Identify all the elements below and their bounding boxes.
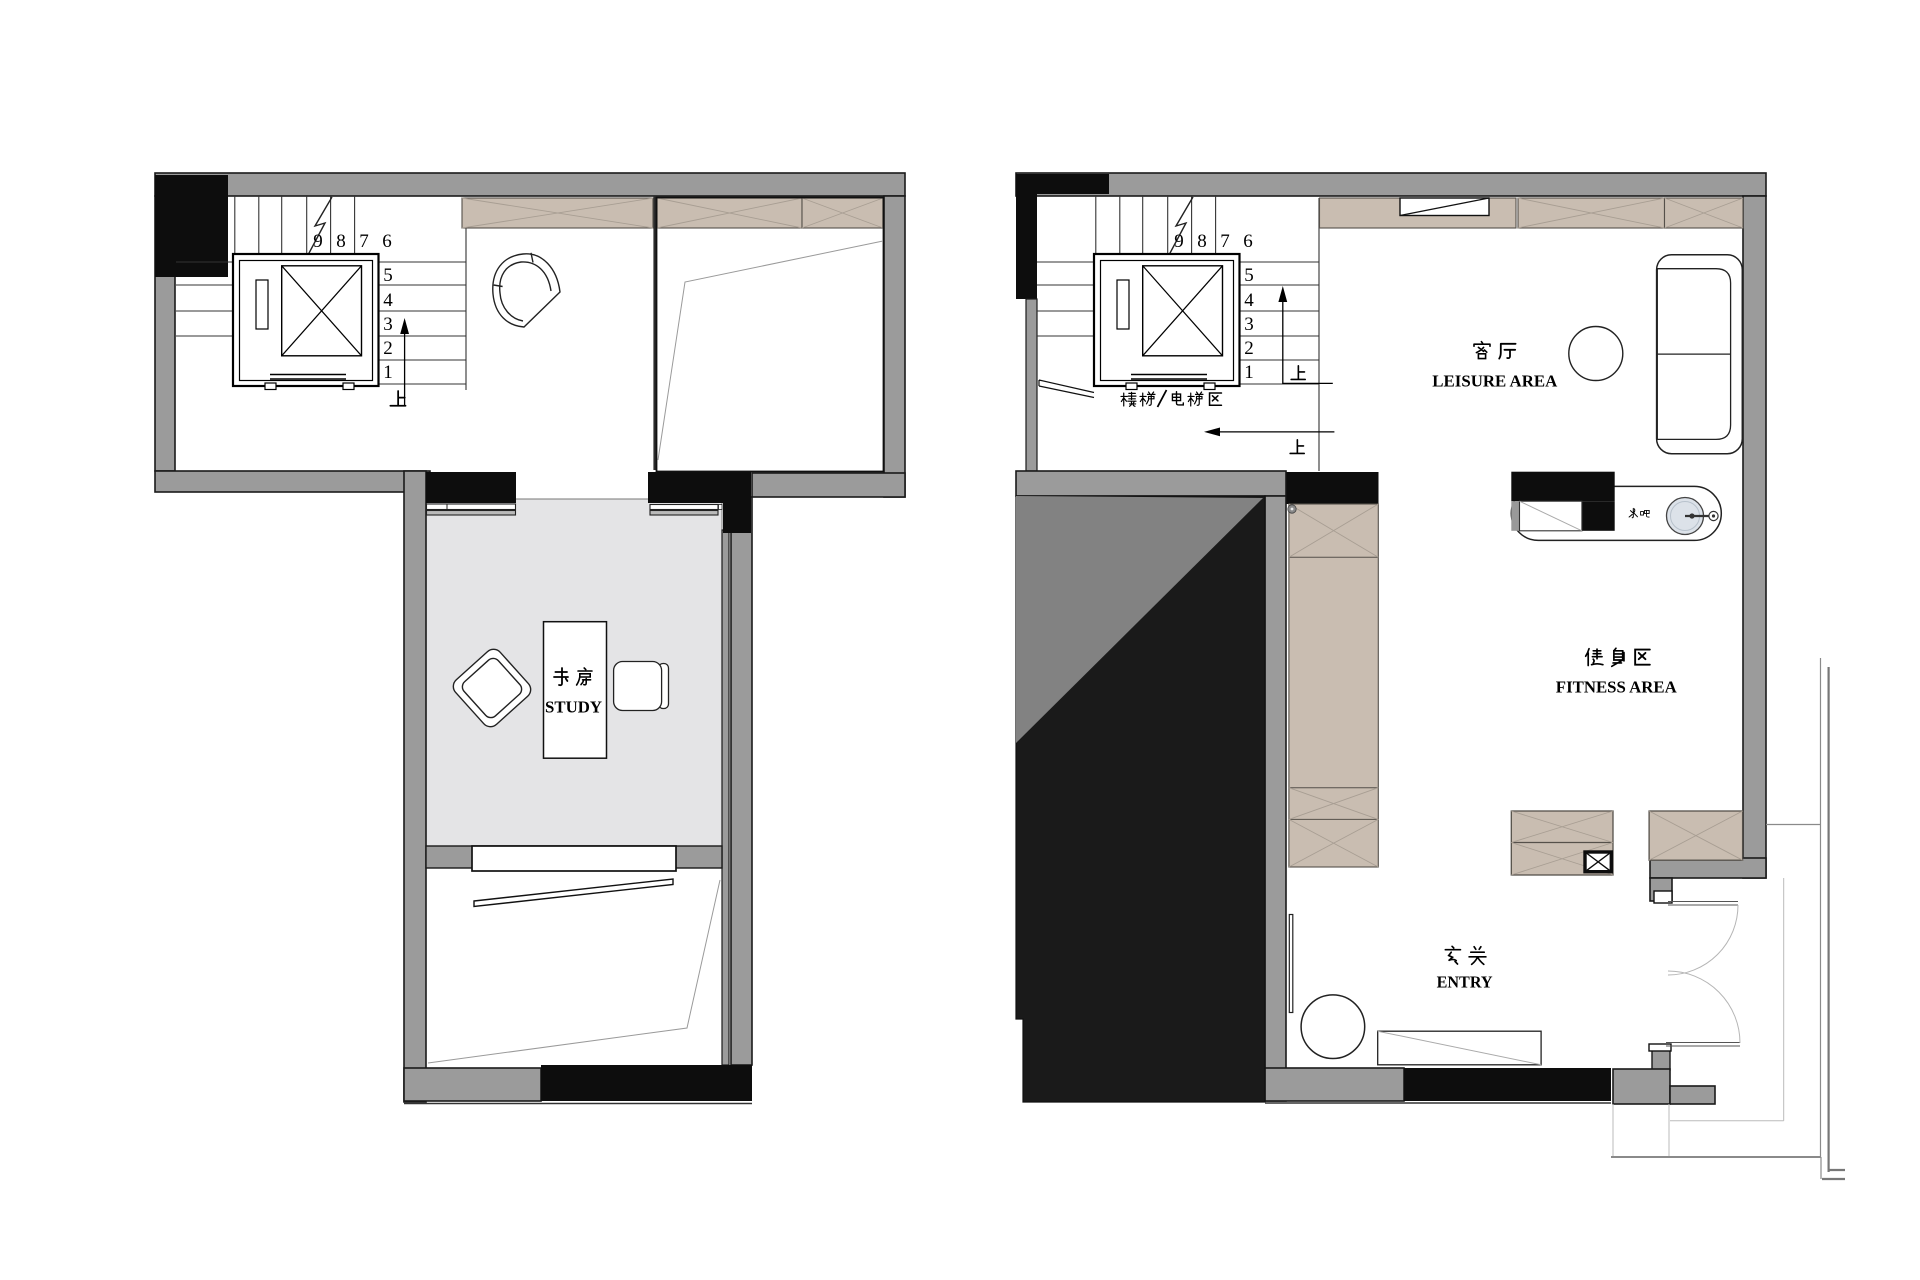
svg-text:6: 6: [1243, 231, 1253, 252]
svg-text:1: 1: [383, 362, 393, 383]
svg-text:4: 4: [1244, 290, 1254, 311]
svg-text:8: 8: [1197, 231, 1207, 252]
svg-text:ENTRY: ENTRY: [1437, 973, 1493, 992]
svg-text:9: 9: [313, 231, 323, 252]
svg-text:6: 6: [382, 231, 392, 252]
svg-text:5: 5: [1244, 265, 1254, 286]
svg-text:9: 9: [1174, 231, 1184, 252]
svg-text:8: 8: [336, 231, 346, 252]
svg-text:3: 3: [1244, 314, 1254, 335]
svg-text:5: 5: [383, 265, 393, 286]
svg-text:LEISURE AREA: LEISURE AREA: [1432, 372, 1558, 391]
svg-text:STUDY: STUDY: [545, 698, 602, 717]
svg-text:2: 2: [383, 338, 393, 359]
svg-text:2: 2: [1244, 338, 1254, 359]
svg-text:7: 7: [359, 231, 369, 252]
svg-text:4: 4: [383, 290, 393, 311]
svg-text:7: 7: [1220, 231, 1230, 252]
svg-text:3: 3: [383, 314, 393, 335]
svg-text:1: 1: [1244, 362, 1254, 383]
svg-text:FITNESS AREA: FITNESS AREA: [1556, 678, 1678, 697]
